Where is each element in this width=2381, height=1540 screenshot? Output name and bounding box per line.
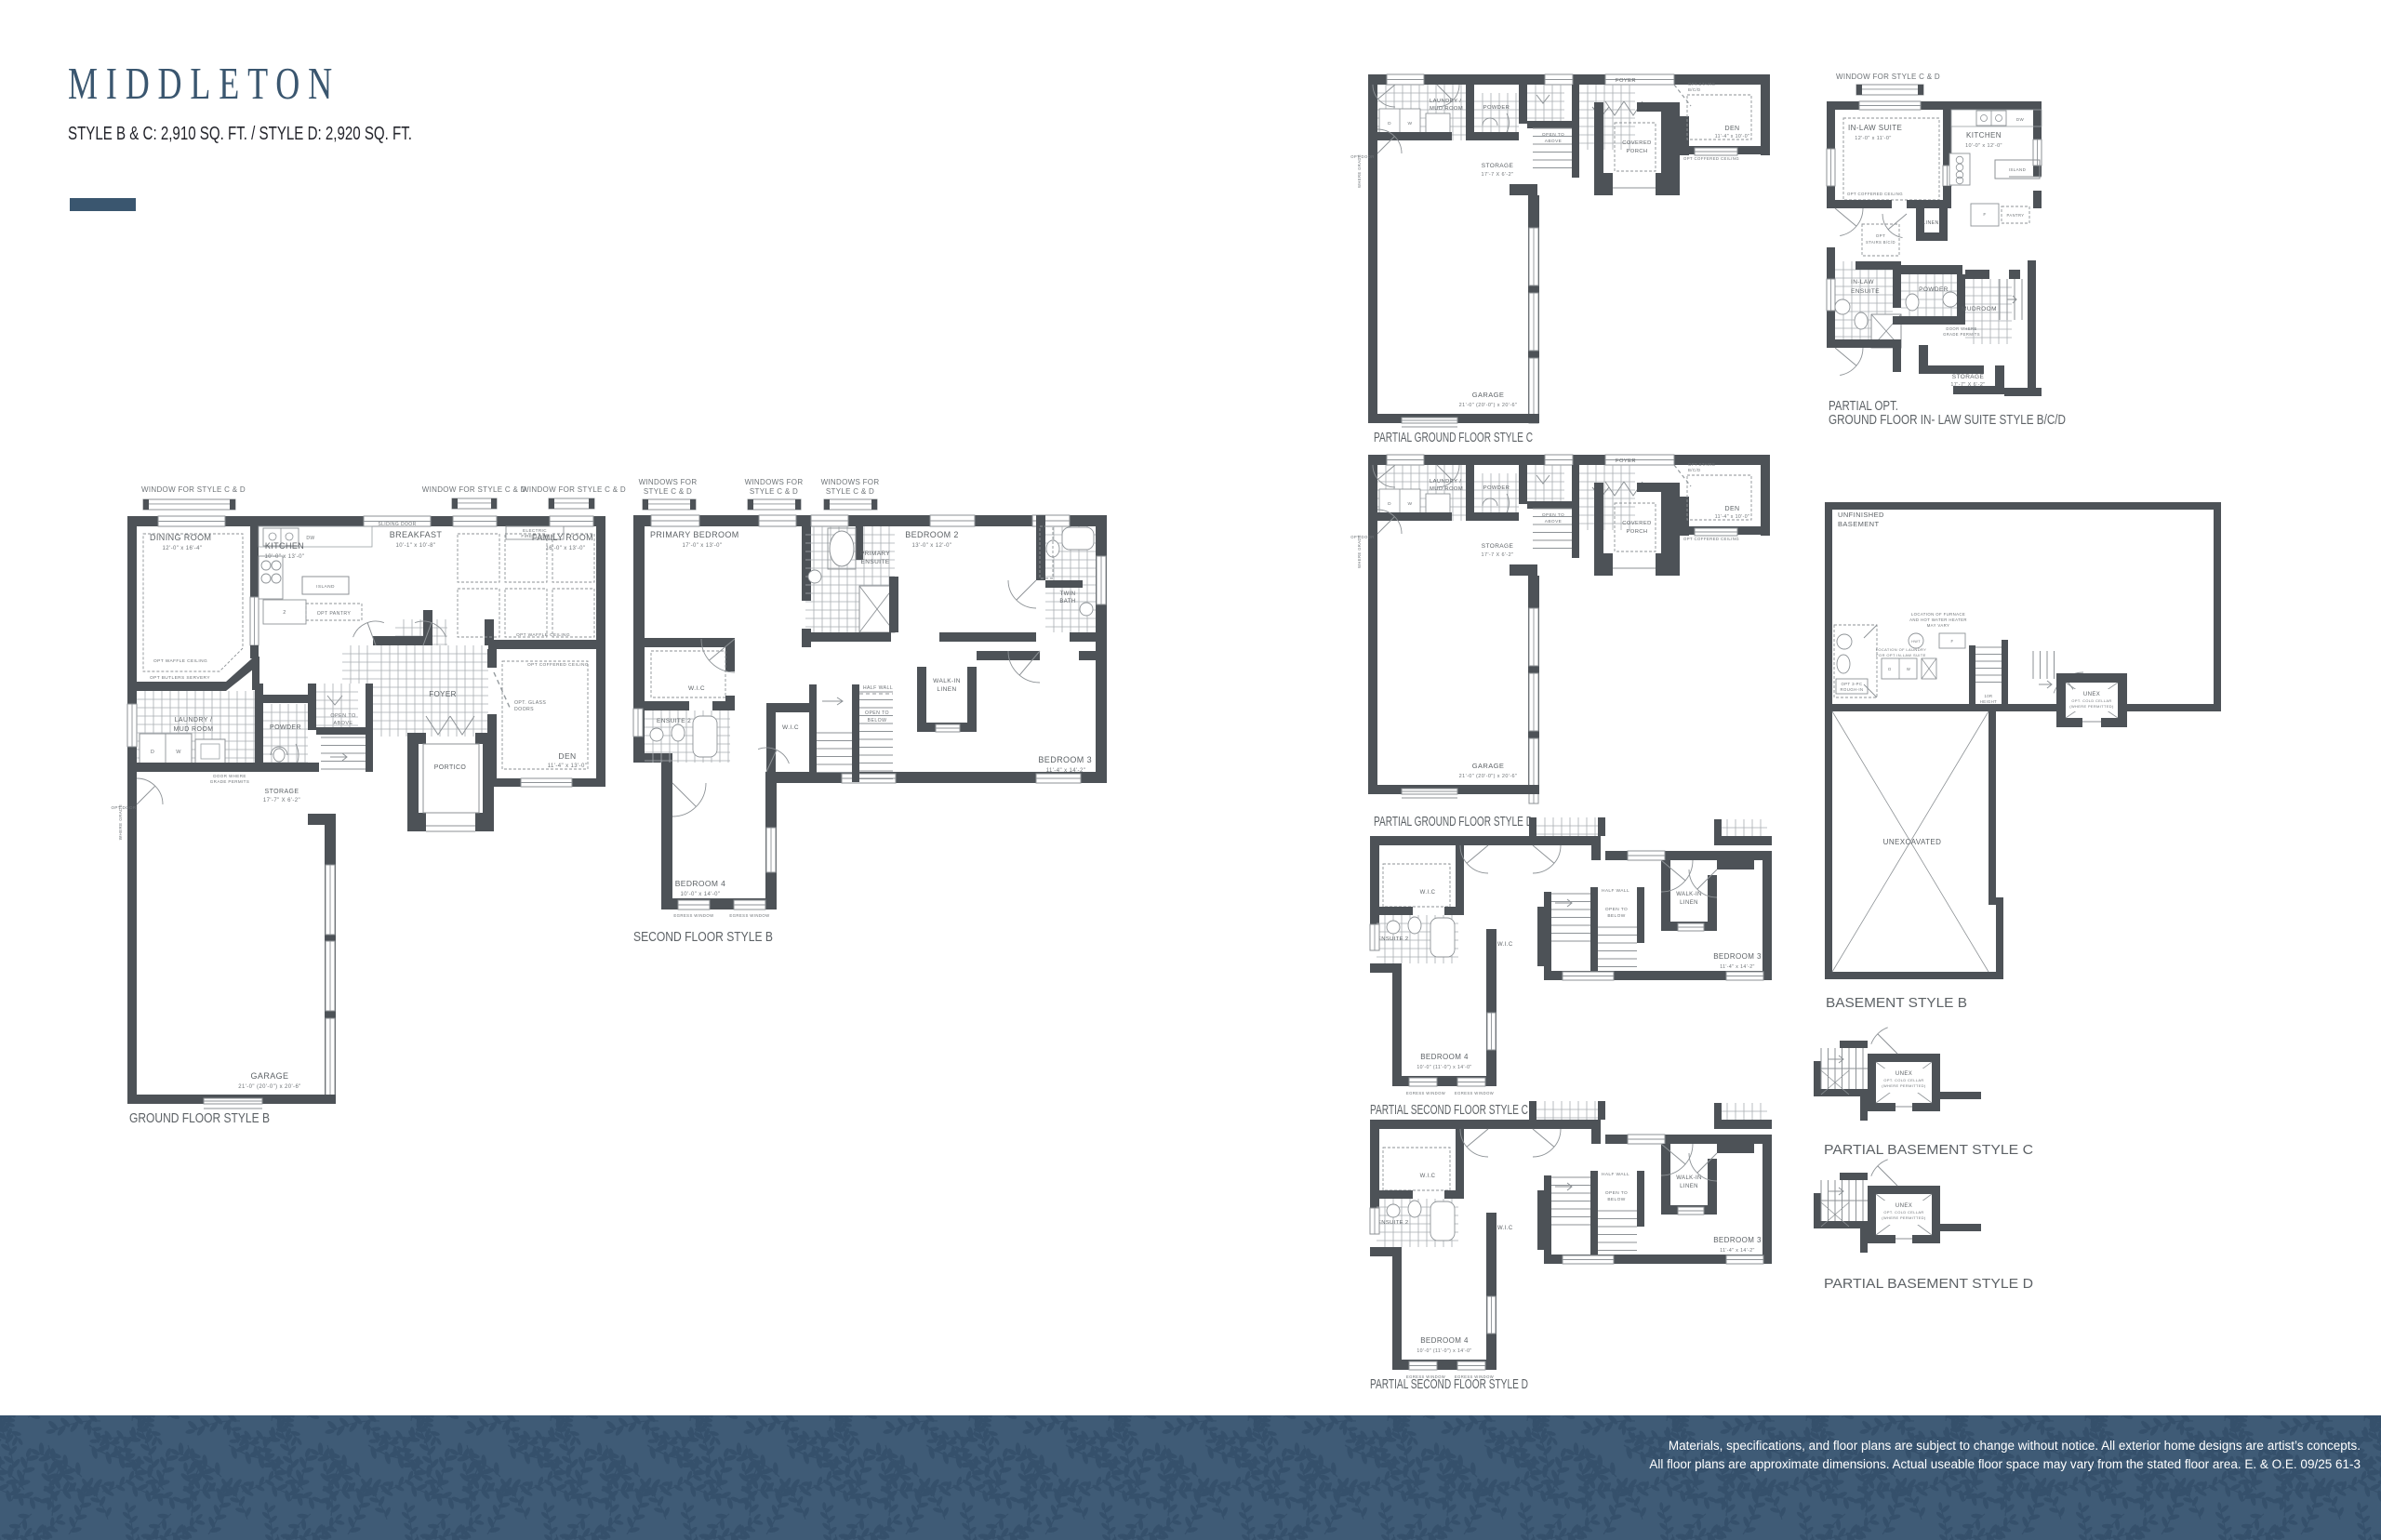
- svg-text:AND HOT WATER HEATER: AND HOT WATER HEATER: [1909, 617, 1967, 622]
- svg-text:13'-0" x 12'-0": 13'-0" x 12'-0": [912, 543, 952, 549]
- svg-text:OPT. COLD CELLAR: OPT. COLD CELLAR: [1883, 1210, 1923, 1215]
- svg-text:OPEN TO: OPEN TO: [865, 710, 889, 716]
- svg-text:17'-0" x 13'-0": 17'-0" x 13'-0": [683, 543, 723, 549]
- svg-text:PARTIAL BASEMENT STYLE D: PARTIAL BASEMENT STYLE D: [1824, 1276, 2033, 1292]
- svg-text:PORCH: PORCH: [1627, 149, 1648, 154]
- svg-text:OPT BUTLERS SERVERY: OPT BUTLERS SERVERY: [150, 675, 210, 681]
- svg-text:UNEX: UNEX: [1895, 1071, 1912, 1077]
- svg-text:BEDROOM 3: BEDROOM 3: [1713, 952, 1762, 961]
- svg-text:OPT 3-PC: OPT 3-PC: [1842, 682, 1863, 686]
- svg-text:MIDDLETON: MIDDLETON: [68, 58, 340, 109]
- svg-text:WALK-IN: WALK-IN: [1676, 892, 1702, 897]
- svg-text:GARAGE: GARAGE: [251, 1071, 289, 1081]
- svg-text:W.I.C: W.I.C: [1420, 890, 1436, 896]
- svg-text:IN-LAW: IN-LAW: [1851, 279, 1874, 285]
- svg-text:17'-7 X 6'-2": 17'-7 X 6'-2": [1482, 172, 1514, 178]
- svg-text:ABOVE: ABOVE: [334, 721, 353, 726]
- svg-text:W: W: [1408, 501, 1413, 507]
- svg-text:12'-0" x 16'-4": 12'-0" x 16'-4": [163, 546, 203, 551]
- svg-text:10'-0" (11'-0") x 14'-0": 10'-0" (11'-0") x 14'-0": [1417, 1065, 1471, 1070]
- svg-text:W.I.C: W.I.C: [1497, 942, 1513, 948]
- svg-text:B/C/D: B/C/D: [1688, 87, 1700, 92]
- svg-text:UNEX: UNEX: [1895, 1203, 1912, 1209]
- svg-text:EGRESS WINDOW: EGRESS WINDOW: [673, 913, 714, 918]
- svg-text:W: W: [176, 750, 181, 755]
- svg-text:F: F: [1950, 639, 1953, 644]
- svg-text:F: F: [1983, 212, 1986, 218]
- svg-text:COVERED: COVERED: [1622, 140, 1651, 146]
- svg-text:SLIDING DOOR: SLIDING DOOR: [378, 522, 416, 527]
- svg-text:ISLAND: ISLAND: [316, 584, 335, 590]
- svg-text:LOCATION OF LAUNDRY: LOCATION OF LAUNDRY: [1876, 647, 1927, 652]
- svg-text:UNFINISHED: UNFINISHED: [1838, 511, 1884, 519]
- svg-text:GROUND FLOOR STYLE B: GROUND FLOOR STYLE B: [129, 1110, 270, 1126]
- svg-text:OPEN TO: OPEN TO: [1542, 132, 1564, 138]
- svg-text:BEDROOM 4: BEDROOM 4: [675, 879, 726, 888]
- svg-text:W.I.C: W.I.C: [1497, 1226, 1513, 1231]
- svg-text:LAUNDRY /: LAUNDRY /: [1430, 99, 1461, 104]
- svg-text:SECOND FLOOR STYLE B: SECOND FLOOR STYLE B: [633, 929, 773, 945]
- svg-text:D: D: [1388, 121, 1391, 126]
- svg-text:B/C/D: B/C/D: [1688, 468, 1700, 472]
- svg-text:TWIN: TWIN: [1060, 591, 1076, 597]
- svg-text:KITCHEN: KITCHEN: [1966, 131, 2002, 139]
- svg-text:OPEN TO: OPEN TO: [1605, 907, 1628, 912]
- svg-text:LINEN: LINEN: [1680, 1184, 1698, 1189]
- svg-text:PARTIAL SECOND FLOOR STYLE D: PARTIAL SECOND FLOOR STYLE D: [1370, 1376, 1528, 1392]
- svg-text:16'-0" x 13'-0": 16'-0" x 13'-0": [546, 546, 586, 551]
- svg-text:21'-0" (20'-0") x 20'-6": 21'-0" (20'-0") x 20'-6": [1459, 403, 1518, 408]
- svg-text:OPT COFFERED CEILING: OPT COFFERED CEILING: [1683, 537, 1739, 541]
- svg-text:BELOW: BELOW: [868, 718, 887, 724]
- svg-text:10'-0" x 12'-0": 10'-0" x 12'-0": [1965, 143, 2002, 149]
- svg-text:LINEN: LINEN: [1922, 220, 1938, 226]
- svg-text:OPT DOOR: OPT DOOR: [1350, 535, 1374, 539]
- svg-text:STYLE C & D: STYLE C & D: [644, 487, 692, 496]
- svg-text:POWDER: POWDER: [1483, 105, 1510, 111]
- svg-text:All floor plans are approximat: All floor plans are approximate dimensio…: [1649, 1457, 2361, 1471]
- svg-text:PRIMARY: PRIMARY: [860, 551, 891, 557]
- svg-text:DEN: DEN: [558, 751, 576, 761]
- svg-text:W: W: [1907, 667, 1910, 671]
- svg-text:MAY VARY: MAY VARY: [1927, 623, 1950, 628]
- svg-text:ENSUITE 2: ENSUITE 2: [657, 718, 691, 724]
- svg-text:11'-4" x 10'-0": 11'-4" x 10'-0": [1715, 514, 1750, 520]
- svg-text:HALF WALL: HALF WALL: [1602, 888, 1629, 894]
- svg-text:GRADE PERMITS: GRADE PERMITS: [1943, 332, 1980, 337]
- svg-text:D: D: [1888, 667, 1891, 671]
- svg-text:POWDER: POWDER: [1919, 286, 1949, 293]
- svg-text:PANTRY: PANTRY: [2007, 213, 2025, 218]
- svg-text:10'-0" x 14'-0": 10'-0" x 14'-0": [681, 892, 721, 897]
- svg-text:ABOVE: ABOVE: [1545, 139, 1563, 144]
- svg-text:GRADE PERMITS: GRADE PERMITS: [210, 779, 249, 784]
- svg-text:WINDOW FOR STYLE C & D: WINDOW FOR STYLE C & D: [1836, 73, 1940, 81]
- svg-text:D: D: [1388, 501, 1391, 507]
- svg-text:FOYER: FOYER: [1616, 78, 1636, 84]
- svg-text:EGRESS WINDOW: EGRESS WINDOW: [1406, 1091, 1445, 1095]
- svg-text:BEDROOM 2: BEDROOM 2: [905, 530, 959, 539]
- svg-text:UNEX: UNEX: [2083, 692, 2100, 697]
- svg-text:BATH: BATH: [1059, 599, 1075, 604]
- svg-text:FOYER: FOYER: [1616, 458, 1636, 464]
- svg-text:OPT STAIRS: OPT STAIRS: [1688, 82, 1715, 86]
- svg-text:STORAGE: STORAGE: [1482, 163, 1514, 169]
- svg-text:MUD ROOM: MUD ROOM: [174, 726, 214, 733]
- svg-text:DOORS: DOORS: [514, 707, 534, 712]
- svg-text:WINDOWS FOR: WINDOWS FOR: [821, 478, 880, 486]
- svg-text:ENSUITE 2: ENSUITE 2: [1377, 936, 1409, 942]
- svg-text:UNEXCAVATED: UNEXCAVATED: [1883, 838, 1942, 846]
- svg-text:ABOVE: ABOVE: [1545, 519, 1563, 524]
- svg-text:DW: DW: [2016, 117, 2025, 122]
- svg-text:EGRESS WINDOW: EGRESS WINDOW: [729, 913, 770, 918]
- svg-text:OPT PANTRY: OPT PANTRY: [317, 611, 352, 617]
- svg-text:DINING ROOM: DINING ROOM: [150, 533, 211, 542]
- svg-text:ISLAND: ISLAND: [2009, 167, 2027, 172]
- svg-text:DOOR WHERE: DOOR WHERE: [1946, 326, 1976, 331]
- svg-text:COVERED: COVERED: [1622, 521, 1651, 526]
- svg-text:OPT WAFFLE CEILING: OPT WAFFLE CEILING: [516, 632, 570, 638]
- svg-text:Materials, specifications, and: Materials, specifications, and floor pla…: [1669, 1439, 2361, 1453]
- svg-text:OPT DOOR: OPT DOOR: [1350, 154, 1374, 159]
- svg-text:STORAGE: STORAGE: [265, 789, 299, 795]
- svg-text:BELOW: BELOW: [1607, 1197, 1625, 1202]
- svg-text:OPT STAIRS: OPT STAIRS: [1688, 462, 1715, 467]
- svg-text:WINDOW FOR STYLE C & D: WINDOW FOR STYLE C & D: [141, 485, 246, 494]
- svg-text:BEDROOM 3: BEDROOM 3: [1038, 755, 1092, 764]
- svg-text:WHERE GRADE: WHERE GRADE: [118, 804, 123, 840]
- svg-text:21'-0" (20'-0") x 20'-6": 21'-0" (20'-0") x 20'-6": [238, 1084, 300, 1090]
- svg-text:11'-4" x 14'-2": 11'-4" x 14'-2": [1720, 1248, 1755, 1254]
- svg-text:MUDROOM: MUDROOM: [1962, 306, 1997, 312]
- svg-text:BASEMENT: BASEMENT: [1838, 520, 1879, 528]
- svg-text:2: 2: [283, 610, 286, 616]
- svg-text:ROUGH-IN: ROUGH-IN: [1841, 687, 1864, 692]
- svg-text:WHERE GRADE: WHERE GRADE: [1357, 535, 1362, 568]
- svg-text:LINEN: LINEN: [937, 686, 956, 693]
- svg-text:BEDROOM 4: BEDROOM 4: [1420, 1336, 1469, 1345]
- svg-text:PRIMARY BEDROOM: PRIMARY BEDROOM: [650, 530, 739, 539]
- svg-text:KITCHEN: KITCHEN: [265, 541, 304, 551]
- svg-text:GROUND FLOOR IN- LAW SUITE STY: GROUND FLOOR IN- LAW SUITE STYLE B/C/D: [1829, 412, 2066, 428]
- svg-text:GARAGE: GARAGE: [1472, 762, 1505, 770]
- svg-text:11'-4" x 10'-0": 11'-4" x 10'-0": [1715, 134, 1750, 139]
- svg-text:10'-1" x 10'-8": 10'-1" x 10'-8": [396, 543, 436, 549]
- svg-text:FOR OPT IN-LAW SUITE: FOR OPT IN-LAW SUITE: [1876, 653, 1926, 657]
- svg-text:STYLE C & D: STYLE C & D: [826, 487, 874, 496]
- svg-text:WINDOWS FOR: WINDOWS FOR: [745, 478, 804, 486]
- svg-text:BEDROOM 4: BEDROOM 4: [1420, 1053, 1469, 1061]
- svg-text:ENSUITE: ENSUITE: [1851, 288, 1880, 295]
- svg-text:OPEN TO: OPEN TO: [330, 713, 356, 719]
- svg-text:HEIGHT: HEIGHT: [1980, 699, 1997, 704]
- svg-text:BELOW: BELOW: [1607, 913, 1625, 919]
- svg-text:POWDER: POWDER: [1483, 485, 1510, 491]
- svg-text:HALF WALL: HALF WALL: [863, 685, 893, 691]
- svg-text:OPT COFFERED CEILING: OPT COFFERED CEILING: [1683, 156, 1739, 161]
- svg-text:(WHERE PERMITTED): (WHERE PERMITTED): [1882, 1215, 1926, 1220]
- svg-text:MUD ROOM: MUD ROOM: [1430, 106, 1463, 112]
- svg-text:PARTIAL GROUND FLOOR STYLE D: PARTIAL GROUND FLOOR STYLE D: [1374, 814, 1533, 830]
- svg-text:11'-4" x 14'-2": 11'-4" x 14'-2": [1720, 964, 1755, 970]
- svg-text:IN-LAW SUITE: IN-LAW SUITE: [1848, 124, 1902, 132]
- svg-text:STORAGE: STORAGE: [1952, 374, 1985, 380]
- svg-text:POWDER: POWDER: [270, 724, 301, 731]
- svg-text:PARTIAL SECOND FLOOR STYLE C: PARTIAL SECOND FLOOR STYLE C: [1370, 1102, 1528, 1118]
- svg-text:PORCH: PORCH: [1627, 529, 1648, 535]
- svg-text:LAUNDRY /: LAUNDRY /: [1430, 479, 1461, 485]
- svg-text:DEN: DEN: [1725, 126, 1740, 132]
- svg-text:BREAKFAST: BREAKFAST: [390, 530, 443, 539]
- svg-text:17'-7" X 6'-2": 17'-7" X 6'-2": [1950, 382, 1985, 388]
- svg-text:11'-4" x 14'-2": 11'-4" x 14'-2": [1046, 768, 1085, 774]
- svg-text:STAIRS B/C/D: STAIRS B/C/D: [1866, 240, 1895, 245]
- svg-text:OPT: OPT: [1876, 233, 1885, 238]
- svg-text:12'-0" x 11'-0": 12'-0" x 11'-0": [1855, 136, 1891, 141]
- svg-text:17'-7" X 6'-2": 17'-7" X 6'-2": [263, 798, 300, 803]
- svg-text:WINDOW FOR STYLE C & D.: WINDOW FOR STYLE C & D.: [422, 485, 528, 494]
- svg-text:STORAGE: STORAGE: [1482, 543, 1514, 550]
- svg-text:WINDOWS FOR: WINDOWS FOR: [639, 478, 698, 486]
- svg-text:EGRESS WINDOW: EGRESS WINDOW: [1455, 1091, 1494, 1095]
- svg-text:W: W: [1408, 121, 1413, 126]
- svg-text:(WHERE PERMITTED): (WHERE PERMITTED): [2069, 704, 2114, 709]
- svg-text:WALK-IN: WALK-IN: [933, 678, 961, 684]
- svg-text:OPT. GLASS: OPT. GLASS: [514, 700, 546, 706]
- svg-text:OPEN TO: OPEN TO: [1542, 512, 1564, 518]
- svg-text:HALF WALL: HALF WALL: [1602, 1172, 1629, 1177]
- svg-text:GARAGE: GARAGE: [1472, 391, 1505, 399]
- svg-text:STYLE C & D: STYLE C & D: [750, 487, 798, 496]
- svg-text:LOCATION OF FURNACE: LOCATION OF FURNACE: [1911, 612, 1965, 617]
- svg-text:11'-4" x 13'-0": 11'-4" x 13'-0": [548, 763, 587, 769]
- svg-text:OPT WAFFLE CEILING: OPT WAFFLE CEILING: [153, 658, 207, 664]
- svg-text:FOYER: FOYER: [429, 690, 457, 698]
- svg-text:(WHERE PERMITTED): (WHERE PERMITTED): [1882, 1083, 1926, 1088]
- svg-text:OPEN TO: OPEN TO: [1605, 1190, 1628, 1196]
- svg-text:21'-0" (20'-0") x 20'-6": 21'-0" (20'-0") x 20'-6": [1459, 774, 1518, 779]
- svg-text:OPT. COLD CELLAR: OPT. COLD CELLAR: [2071, 698, 2111, 703]
- svg-text:LAUNDRY /: LAUNDRY /: [175, 717, 213, 724]
- svg-text:D: D: [151, 750, 154, 755]
- svg-text:DW: DW: [306, 536, 314, 541]
- svg-text:DEN: DEN: [1725, 506, 1740, 512]
- svg-text:W.I.C: W.I.C: [688, 685, 705, 692]
- svg-text:HWT: HWT: [1911, 640, 1921, 644]
- svg-text:W.I.C: W.I.C: [782, 724, 799, 731]
- svg-text:WINDOW FOR STYLE C & D: WINDOW FOR STYLE C & D: [522, 485, 626, 494]
- svg-text:ENSUITE: ENSUITE: [861, 559, 890, 565]
- svg-text:FAMILY ROOM: FAMILY ROOM: [532, 533, 593, 542]
- svg-text:17'-7 X 6'-2": 17'-7 X 6'-2": [1482, 552, 1514, 558]
- svg-text:10'-0" x 13'-0": 10'-0" x 13'-0": [265, 554, 305, 560]
- svg-text:10R: 10R: [1985, 694, 1993, 698]
- svg-text:PARTIAL BASEMENT STYLE C: PARTIAL BASEMENT STYLE C: [1824, 1142, 2033, 1158]
- svg-text:10'-0" (11'-0") x 14'-0": 10'-0" (11'-0") x 14'-0": [1417, 1348, 1471, 1354]
- svg-text:W.I.C: W.I.C: [1420, 1174, 1436, 1179]
- svg-text:STYLE B & C: 2,910 SQ. FT. / S: STYLE B & C: 2,910 SQ. FT. / STYLE D: 2,…: [68, 124, 412, 144]
- svg-text:MUD ROOM: MUD ROOM: [1430, 486, 1463, 492]
- svg-text:PARTIAL GROUND FLOOR STYLE C: PARTIAL GROUND FLOOR STYLE C: [1374, 430, 1533, 445]
- svg-text:OPT DOOR: OPT DOOR: [111, 805, 136, 810]
- svg-text:WHERE GRADE: WHERE GRADE: [1357, 154, 1362, 188]
- svg-text:BASEMENT STYLE B: BASEMENT STYLE B: [1826, 995, 1967, 1011]
- svg-text:WALK-IN: WALK-IN: [1676, 1175, 1702, 1181]
- svg-text:OPT COFFERED CEILING: OPT COFFERED CEILING: [527, 662, 589, 668]
- svg-text:OPT. COLD CELLAR: OPT. COLD CELLAR: [1883, 1078, 1923, 1082]
- svg-text:ENSUITE 2: ENSUITE 2: [1377, 1220, 1409, 1226]
- svg-text:OPT COFFERED CEILING: OPT COFFERED CEILING: [1847, 192, 1903, 196]
- svg-text:PORTICO: PORTICO: [434, 764, 467, 771]
- svg-text:DOOR WHERE: DOOR WHERE: [213, 774, 246, 778]
- svg-text:LINEN: LINEN: [1680, 900, 1698, 906]
- svg-text:BEDROOM 3: BEDROOM 3: [1713, 1236, 1762, 1244]
